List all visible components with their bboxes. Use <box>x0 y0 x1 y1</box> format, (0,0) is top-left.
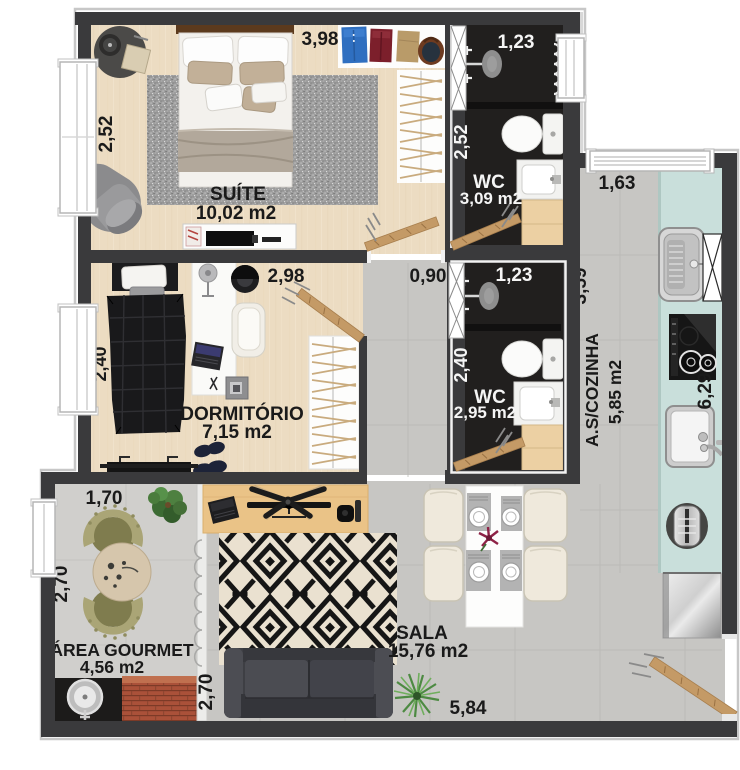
svg-text:1,70: 1,70 <box>86 488 123 509</box>
svg-text:7,15 m2: 7,15 m2 <box>202 422 272 443</box>
svg-text:1,63: 1,63 <box>599 173 636 194</box>
svg-text:2,40: 2,40 <box>451 347 471 382</box>
svg-text:SUÍTE: SUÍTE <box>210 183 266 205</box>
svg-text:0,90: 0,90 <box>410 266 447 287</box>
svg-text:3,98: 3,98 <box>302 29 339 50</box>
svg-text:10,02 m2: 10,02 m2 <box>196 203 276 224</box>
svg-text:5,84: 5,84 <box>450 698 487 719</box>
svg-text:2,70: 2,70 <box>196 674 217 711</box>
svg-text:1,23: 1,23 <box>496 265 533 286</box>
svg-text:2,95 m2: 2,95 m2 <box>454 403 516 422</box>
svg-text:4,56 m2: 4,56 m2 <box>80 657 144 677</box>
svg-text:15,76 m2: 15,76 m2 <box>388 641 468 662</box>
svg-text:1,23: 1,23 <box>498 32 535 53</box>
svg-text:3,09 m2: 3,09 m2 <box>460 189 522 208</box>
svg-text:6,29: 6,29 <box>695 373 716 410</box>
svg-text:2,52: 2,52 <box>96 116 117 153</box>
svg-text:2,52: 2,52 <box>451 124 471 159</box>
svg-text:5,85 m2: 5,85 m2 <box>605 360 625 424</box>
svg-text:A.S/COZINHA: A.S/COZINHA <box>582 333 602 447</box>
